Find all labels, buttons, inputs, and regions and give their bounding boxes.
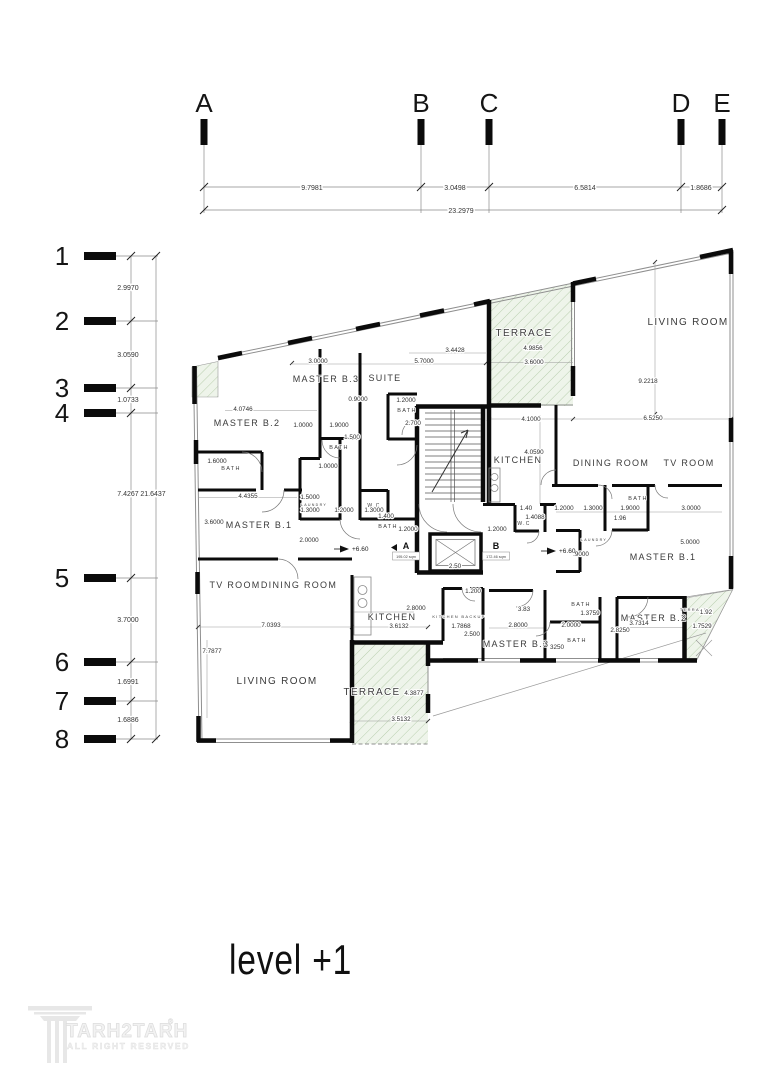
room-kitchen-backup: KITCHEN BACKUP — [432, 614, 485, 619]
grid-row-label-2: 2 — [55, 306, 69, 336]
grid-col-tick — [486, 119, 493, 145]
dim-top-segment: 6.5814 — [574, 185, 596, 192]
plan-dim: 3.6000 — [204, 519, 224, 526]
grid-col-tick — [418, 119, 425, 145]
level-flag-icon — [340, 546, 349, 553]
dim-top-segment: 3.0498 — [444, 185, 466, 192]
room-laundry-right: LAUNDRY — [581, 538, 607, 542]
plan-dim: 2.0000 — [561, 622, 581, 629]
plan-dim: 3.0000 — [308, 358, 328, 365]
plan-dim: 5.7000 — [414, 358, 434, 365]
plan-dim: 2.500 — [464, 631, 480, 638]
room-bath-suite: BATH — [397, 408, 416, 414]
floor-plan-drawing: ABCDE9.79813.04986.58141.868623.2979 123… — [0, 0, 764, 1080]
room-dining-right: DINING ROOM — [573, 458, 649, 468]
room-dining-left: DINING ROOM — [261, 580, 337, 590]
grid-row-tick — [84, 658, 116, 666]
dim-left-segment: 1.6886 — [117, 717, 139, 724]
grid-row-label-5: 5 — [55, 563, 69, 593]
grid-col-label-A: A — [195, 88, 213, 118]
drawing-sheet: ABCDE9.79813.04986.58141.868623.2979 123… — [0, 0, 764, 1080]
plan-dim: 3.6000 — [524, 359, 544, 366]
grid-row-tick — [84, 384, 116, 392]
plan-dim: 1.3000 — [300, 507, 320, 514]
plan-dim: 3.4428 — [445, 347, 465, 354]
grid-col-tick — [678, 119, 685, 145]
plan-dim: 3.5132 — [391, 716, 411, 723]
plan-dim: 3.83 — [518, 606, 531, 613]
plan-dim: 2.8250 — [610, 627, 630, 634]
grid-col-tick — [719, 119, 726, 145]
plan-dim: 3.0000 — [681, 505, 701, 512]
plan-dim: 1.5000 — [300, 494, 320, 501]
plan-dim: 7.0393 — [261, 622, 281, 629]
grid-row-tick — [84, 697, 116, 705]
grid-col-label-E: E — [713, 88, 730, 118]
sheet-title: level +1 — [229, 938, 352, 984]
grid-columns: ABCDE9.79813.04986.58141.868623.2979 — [195, 88, 730, 215]
room-master-b1-right: MASTER B.1 — [630, 552, 697, 562]
plan-dim: 3250 — [550, 644, 565, 651]
room-master-b3-left: MASTER B.3 — [293, 374, 360, 384]
room-tv-right: TV ROOM — [663, 458, 714, 468]
plan-dim: 9.2218 — [638, 378, 658, 385]
plan-dim: 1.92 — [700, 609, 713, 616]
room-bath-mid: BATH — [329, 445, 348, 451]
level-annotation: +6.60 — [559, 548, 576, 555]
plan-dim: 2.50 — [449, 563, 462, 570]
dim-top-overall: 23.2979 — [448, 208, 473, 215]
room-master-b2-left: MASTER B.2 — [214, 418, 281, 428]
dim-top-segment: 9.7981 — [301, 185, 323, 192]
logo-registered-mark: ® — [168, 1018, 174, 1026]
plan-dim: 1.9000 — [620, 505, 640, 512]
level-flag-icon — [547, 548, 556, 555]
plan-dim: 0.9000 — [348, 396, 368, 403]
plan-dim: 5.0000 — [680, 539, 700, 546]
dim-left-overall: 21.6437 — [140, 491, 165, 498]
room-bath-left: BATH — [221, 466, 240, 472]
plan-dim: 1.200 — [465, 588, 481, 595]
grid-row-label-7: 7 — [55, 686, 69, 716]
grid-col-label-C: C — [480, 88, 499, 118]
grid-col-label-D: D — [672, 88, 691, 118]
room-wc-right: W.C — [517, 521, 530, 527]
unit-label-B: B — [493, 541, 500, 551]
grid-row-tick — [84, 252, 116, 260]
plan-dim: 4.3877 — [404, 690, 424, 697]
plan-dim: 1.0000 — [293, 422, 313, 429]
room-master-b3-bottom: MASTER B.3 — [483, 639, 550, 649]
plan-dim: 4.0590 — [524, 449, 544, 456]
plan-dim: 1.40 — [520, 505, 533, 512]
dim-left-segment: 1.0733 — [117, 397, 139, 404]
room-bath-right-top: BATH — [628, 496, 647, 502]
plan-dim: 2.8000 — [508, 622, 528, 629]
room-master-b1-left: MASTER B.1 — [226, 520, 293, 530]
plan-dim: 1.2000 — [487, 526, 507, 533]
plan-dim: 3.6132 — [389, 623, 409, 630]
plan-dim: 1.4088 — [525, 514, 545, 521]
plan-dim: .9000 — [573, 551, 589, 558]
plan-dim: 4.1000 — [521, 416, 541, 423]
unit-label-A: A — [403, 541, 410, 551]
plan-dim: 4.4355 — [238, 493, 258, 500]
room-bath-br-1: BATH — [571, 602, 590, 608]
plan-dim: 1.6000 — [207, 458, 227, 465]
grid-row-label-8: 8 — [55, 724, 69, 754]
plan-dim: 1.7868 — [451, 623, 471, 630]
unit-area-value: 172.46 sqm — [486, 555, 506, 559]
page-title: level +1 — [229, 938, 352, 984]
plan-dim: 1.9000 — [329, 422, 349, 429]
plan-dim: 1.7529 — [692, 623, 712, 630]
grid-row-label-6: 6 — [55, 647, 69, 677]
plan-dim: 7.7877 — [202, 648, 222, 655]
grid-rows: 123456782.99703.05901.07337.42673.70001.… — [55, 241, 166, 754]
grid-row-label-1: 1 — [55, 241, 69, 271]
plan-dim: 1.0000 — [318, 463, 338, 470]
room-living-top-right: LIVING ROOM — [648, 317, 729, 328]
logo: TARH2TARH ® ALL RIGHT RESERVED — [28, 1006, 190, 1063]
plan-dim-lines — [196, 260, 733, 723]
plan-dim: 1.500 — [344, 434, 360, 441]
staircase — [419, 410, 481, 532]
grid-row-label-4: 4 — [55, 398, 69, 428]
plan-dim: 1.2000 — [334, 507, 354, 514]
plan-dim: 1.3759 — [580, 610, 600, 617]
unit-area-value: 195.02 sqm — [396, 555, 416, 559]
dim-left-segment: 7.4267 — [117, 491, 139, 498]
room-kitchen-left: KITCHEN — [368, 612, 417, 622]
plan-dim: 1.2000 — [554, 505, 574, 512]
room-tv-left: TV ROOM — [209, 580, 260, 590]
room-living-bottom-left: LIVING ROOM — [237, 676, 318, 687]
plan-dim: 2.0000 — [299, 537, 319, 544]
dim-left-segment: 3.7000 — [117, 617, 139, 624]
room-kitchen-right: KITCHEN — [494, 455, 543, 465]
plan-dim: 1.3000 — [583, 505, 603, 512]
plan-dim: 1.2000 — [396, 397, 416, 404]
plan-dim: 4.9856 — [523, 345, 543, 352]
level-annotation: +6.60 — [352, 546, 369, 553]
grid-row-tick — [84, 735, 116, 743]
dim-left-segment: 3.0590 — [117, 352, 139, 359]
grid-row-tick — [84, 409, 116, 417]
room-terrace-top: TERRACE — [496, 328, 553, 339]
plan-dim: 1.96 — [614, 515, 627, 522]
grid-col-tick — [201, 119, 208, 145]
plan-dim: 4.0746 — [233, 406, 253, 413]
plan-dim: 3.7314 — [629, 620, 649, 627]
grid-col-label-B: B — [412, 88, 429, 118]
room-terrace-bottom: TERRACE — [344, 687, 401, 698]
plan-dim: 1.2000 — [398, 526, 418, 533]
unit-flag-icon — [391, 544, 397, 551]
dim-top-segment: 1.8686 — [690, 185, 712, 192]
grid-row-tick — [84, 574, 116, 582]
room-bath-br-2: BATH — [567, 638, 586, 644]
room-suite: SUITE — [368, 373, 401, 383]
plan-dim: 2.8000 — [406, 605, 426, 612]
dim-left-segment: 1.6991 — [117, 679, 139, 686]
logo-tagline: ALL RIGHT RESERVED — [67, 1041, 190, 1051]
plan-dim: 6.5250 — [643, 415, 663, 422]
room-bath-core: BATH — [378, 524, 397, 530]
plan-dim: 2.700 — [405, 420, 421, 427]
dim-left-segment: 2.9970 — [117, 285, 139, 292]
grid-row-tick — [84, 317, 116, 325]
plan-dim: 1.400 — [378, 513, 394, 520]
